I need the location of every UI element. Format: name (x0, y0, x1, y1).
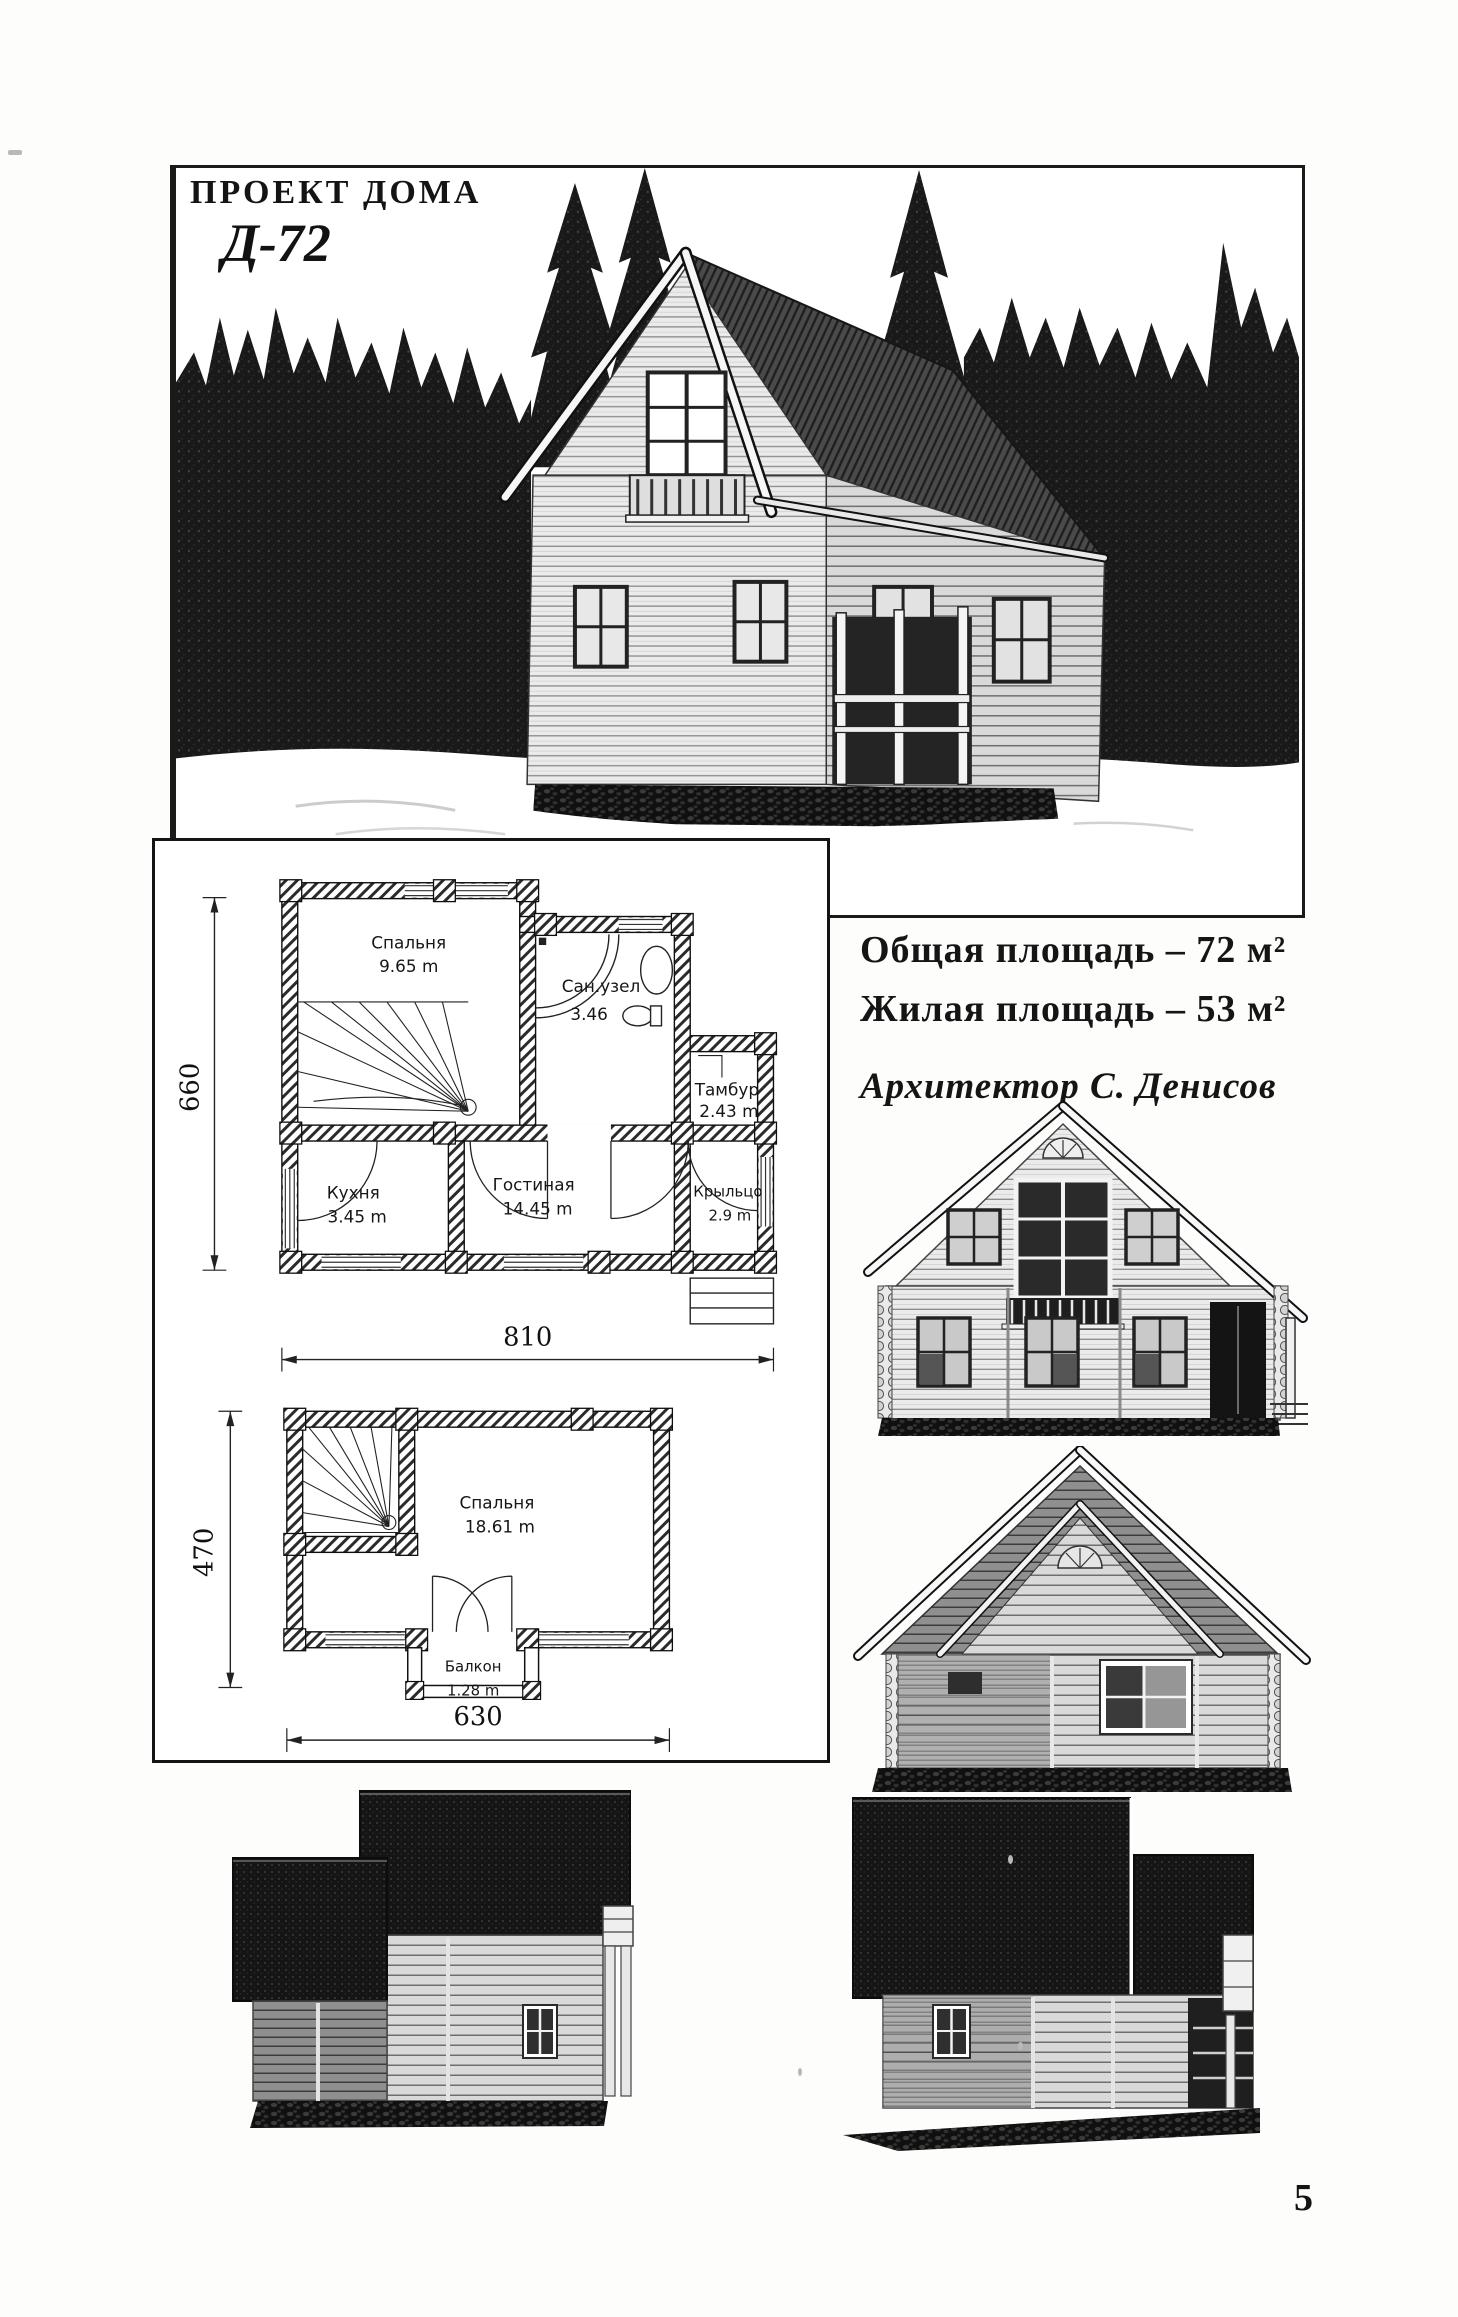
living-area-line: Жилая площадь – 53 м² (860, 987, 1320, 1031)
room-label-living-name: Гостиная (493, 1175, 575, 1195)
sink-icon (641, 946, 673, 994)
room-label-kitchen-name: Кухня (327, 1183, 380, 1203)
room-label-porch-area: 2.9 m (708, 1207, 751, 1225)
specs-block: Общая площадь – 72 м² Жилая площадь – 53… (860, 928, 1320, 1108)
svg-text:630: 630 (454, 1702, 503, 1732)
room-label-vestibule-area: 2.43 m (699, 1101, 758, 1121)
room-label-balcony-name: Балкон (445, 1658, 502, 1676)
plan2-windows (325, 1631, 628, 1649)
toilet-icon (623, 1006, 662, 1026)
svg-text:470: 470 (190, 1528, 220, 1577)
dim-630: 630 (287, 1702, 670, 1752)
room-label-kitchen-area: 3.45 m (328, 1206, 387, 1226)
plan2-stairs (303, 1427, 399, 1532)
foundation-strip (843, 2108, 1260, 2151)
foundation-strip (250, 2101, 608, 2128)
project-title: ПРОЕКТ ДОМА (190, 174, 481, 212)
balcony-door-arcs (433, 1576, 512, 1632)
elevation-rear (852, 1446, 1314, 1794)
room-label-bedroom1-name: Спальня (371, 932, 446, 952)
house-photo-illustration (176, 168, 1302, 915)
floor-plans-drawing: Спальня 9.65 m Сан.узел 3.46 Тамбур 2.43… (155, 841, 827, 1760)
second-floor-plan: Спальня 18.61 m Балкон 1.28 m 470 (190, 1408, 673, 1752)
main-roof-mass (853, 1798, 1130, 1998)
scan-speck (1008, 1855, 1013, 1864)
room-label-bedroom2-area: 18.61 m (465, 1516, 535, 1536)
porch (832, 607, 992, 814)
scan-speck (1018, 2042, 1023, 2050)
first-floor-plan: Спальня 9.65 m Сан.узел 3.46 Тамбур 2.43… (176, 880, 777, 1372)
rear-window (1100, 1660, 1192, 1734)
elevation-front (858, 1100, 1308, 1438)
project-code: Д-72 (222, 212, 331, 274)
right-porch-posts (603, 1906, 633, 2096)
room-label-bedroom2-name: Спальня (459, 1493, 534, 1513)
rear-vent (948, 1672, 982, 1694)
porch-roof-mass (233, 1858, 387, 2001)
scanned-catalog-page: ПРОЕКТ ДОМА Д-72 (0, 0, 1458, 2317)
side-wall (387, 1935, 603, 2101)
photo-frame: ПРОЕКТ ДОМА Д-72 (170, 165, 1305, 918)
floor-plan-box: Спальня 9.65 m Сан.узел 3.46 Тамбур 2.43… (152, 838, 830, 1763)
front-gable-window (1016, 1180, 1110, 1298)
scan-speck (798, 2068, 802, 2076)
room-label-balcony-area: 1.28 m (447, 1681, 499, 1699)
svg-text:660: 660 (176, 1063, 206, 1112)
room-label-bathroom-area: 3.46 (570, 1004, 608, 1024)
page-number: 5 (1294, 2176, 1313, 2220)
side-window (933, 2005, 970, 2058)
total-area-line: Общая площадь – 72 м² (860, 928, 1320, 972)
lower-windows (918, 1318, 1186, 1386)
dim-810: 810 (282, 1323, 774, 1372)
room-label-living-area: 14.45 m (503, 1199, 573, 1219)
room-label-vestibule-name: Тамбур (694, 1079, 759, 1099)
elevation-side-right (838, 1783, 1308, 2155)
svg-text:810: 810 (503, 1323, 552, 1353)
balcony-rail (626, 475, 749, 522)
plan1-entry-steps (690, 1278, 773, 1324)
vestibule-leader-line (698, 1056, 722, 1078)
room-label-porch-name: Крыльцо (693, 1183, 762, 1201)
dim-660: 660 (176, 898, 227, 1271)
plan1-stairs (298, 1002, 476, 1115)
main-roof-mass (360, 1791, 630, 1935)
elevation-side-left (158, 1786, 638, 2138)
side-window (523, 2005, 557, 2058)
gable-window (648, 372, 726, 475)
room-label-bathroom-name: Сан.узел (562, 976, 640, 996)
foundation-strip (878, 1418, 1280, 1436)
room-label-bedroom1-area: 9.65 m (379, 956, 438, 976)
dim-470: 470 (190, 1411, 243, 1687)
scan-speck (8, 150, 22, 155)
